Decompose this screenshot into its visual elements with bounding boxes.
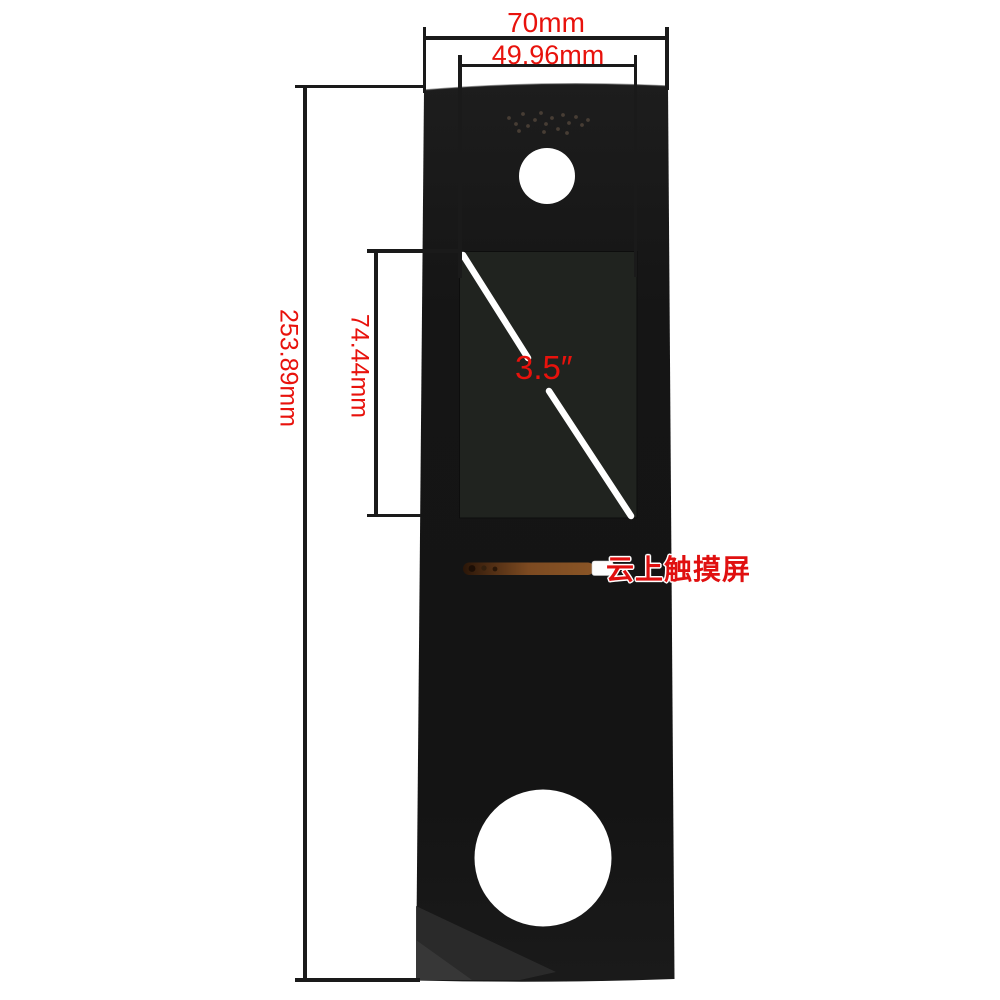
speaker-dot [533, 118, 537, 122]
speaker-dot [580, 123, 584, 127]
dim-screen-height-tick-bottom [367, 514, 421, 518]
dim-screen-height-tick-top [367, 249, 462, 253]
dim-screen-width-ext-left [458, 55, 462, 278]
speaker-dot [550, 116, 554, 120]
speaker-dot [514, 122, 518, 126]
watermark-text: 云上触摸屏 [606, 548, 751, 588]
button-hole [475, 790, 612, 927]
dim-screen-width-ext-right [634, 55, 638, 277]
dim-screen-height-line [374, 250, 378, 516]
dim-screen-diagonal-label: 3.5″ [515, 351, 573, 384]
dim-screen-width-label: 49.96mm [459, 42, 637, 69]
dim-screen-height-label: 74.44mm [347, 314, 372, 418]
speaker-dot [507, 116, 511, 120]
panel-illustration [0, 0, 1000, 1000]
speaker-dot [521, 112, 525, 116]
speaker-dot [526, 124, 530, 128]
dim-overall-height-tick-bottom [295, 978, 420, 982]
speaker-dot [517, 129, 521, 133]
flex-cable-slot [463, 561, 613, 576]
flex-cable-speckle [469, 565, 476, 572]
flex-cable-speckle [493, 567, 498, 572]
speaker-dot [567, 121, 571, 125]
flex-cable-speckle [481, 565, 486, 570]
dim-overall-height-line [303, 85, 307, 981]
dim-overall-height-label: 253.89mm [276, 309, 301, 427]
dim-overall-height-tick-top [295, 85, 425, 89]
dim-overall-width-label: 70mm [424, 9, 668, 37]
speaker-dot [556, 127, 560, 131]
speaker-dot [586, 118, 590, 122]
speaker-dot [544, 122, 548, 126]
speaker-dot [565, 131, 569, 135]
speaker-dot [561, 113, 565, 117]
speaker-dot [539, 111, 543, 115]
speaker-dot [542, 130, 546, 134]
speaker-dot [574, 115, 578, 119]
camera-hole [519, 148, 575, 204]
diagram-canvas: 70mm 49.96mm 253.89mm 74.44mm 3.5″ 云上触摸屏 [0, 0, 1000, 1000]
